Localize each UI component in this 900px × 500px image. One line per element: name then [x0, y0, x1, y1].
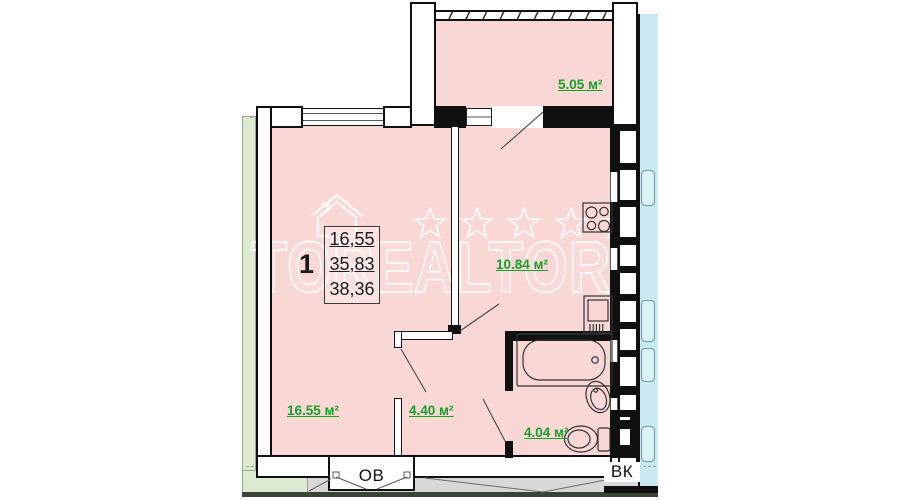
- balcony-glazing: [436, 10, 612, 21]
- hallway-area-label: 4.40 м²: [409, 403, 454, 418]
- column: [410, 2, 436, 126]
- wall-right: [610, 202, 618, 248]
- wall-bathroom-left: [505, 441, 513, 458]
- water-shaft-label: ВК: [604, 462, 640, 482]
- wall-bottom-exterior: [256, 455, 612, 478]
- living-area-value: 16,55: [325, 227, 379, 252]
- heating-shaft-label: ОВ: [328, 466, 415, 486]
- adjacent-window: [641, 300, 655, 342]
- total-area-with-balcony-value: 38,36: [325, 277, 379, 302]
- wall-bathroom-left: [505, 341, 513, 391]
- shaft-band: [618, 350, 638, 357]
- right-window: [610, 172, 618, 202]
- wall-left-exterior: [256, 106, 272, 478]
- adjacent-window: [641, 348, 655, 382]
- shaft-band: [618, 386, 638, 395]
- watermark-stars: [408, 202, 640, 246]
- shaft-band: [618, 322, 638, 329]
- balcony-area-label: 5.05 м²: [558, 77, 603, 92]
- water-shaft-wall: [618, 410, 638, 417]
- right-window: [610, 248, 618, 270]
- living-area-label: 16.55 м²: [287, 403, 339, 418]
- wall-segment: [434, 106, 466, 128]
- plan-bottom-border: [242, 492, 658, 497]
- shaft-band: [618, 294, 638, 301]
- partition-hallway-left: [394, 331, 402, 348]
- adjacent-cyan-strip: [638, 14, 658, 493]
- balcony-window-unit: [466, 108, 492, 126]
- partition-living-kitchen: [451, 126, 459, 333]
- shaft-band: [618, 266, 638, 273]
- right-window: [610, 340, 618, 362]
- shaft-band: [618, 200, 638, 207]
- water-shaft-wall: [618, 445, 638, 452]
- shaft-band: [618, 237, 638, 245]
- star-icon: [462, 208, 492, 237]
- wall-right: [610, 124, 618, 172]
- water-shaft-wall: [604, 486, 658, 493]
- shaft-band: [618, 163, 638, 170]
- adjacent-window: [641, 170, 655, 206]
- wall-right: [610, 362, 618, 398]
- apartment-areas-box: 16,55 35,83 38,36: [324, 226, 380, 304]
- wall-segment: [383, 106, 412, 128]
- adjacent-window: [641, 426, 655, 462]
- column: [612, 2, 638, 126]
- star-icon: [556, 208, 586, 237]
- water-shaft-wall: [630, 417, 638, 445]
- kitchen-area-label: 10.84 м²: [496, 257, 548, 272]
- wall-right: [610, 270, 618, 340]
- partition-hallway-left: [394, 398, 402, 460]
- rooms-count: 1: [299, 249, 314, 280]
- room-balcony: [434, 20, 614, 108]
- bathroom-area-label: 4.04 м²: [524, 425, 569, 440]
- wall-bathroom-top: [505, 331, 612, 341]
- total-area-value: 35,83: [325, 252, 379, 277]
- balcony-door-opening: [492, 106, 543, 128]
- room-hallway: [396, 333, 510, 460]
- living-window: [303, 108, 383, 126]
- shaft-band: [618, 124, 638, 131]
- floor-plan: TOREALTOR: [0, 0, 900, 500]
- wall-segment: [543, 106, 614, 128]
- star-icon: [415, 208, 445, 237]
- partition-hallway-top: [396, 331, 453, 340]
- water-shaft-wall: [610, 410, 618, 458]
- star-icon: [509, 208, 539, 237]
